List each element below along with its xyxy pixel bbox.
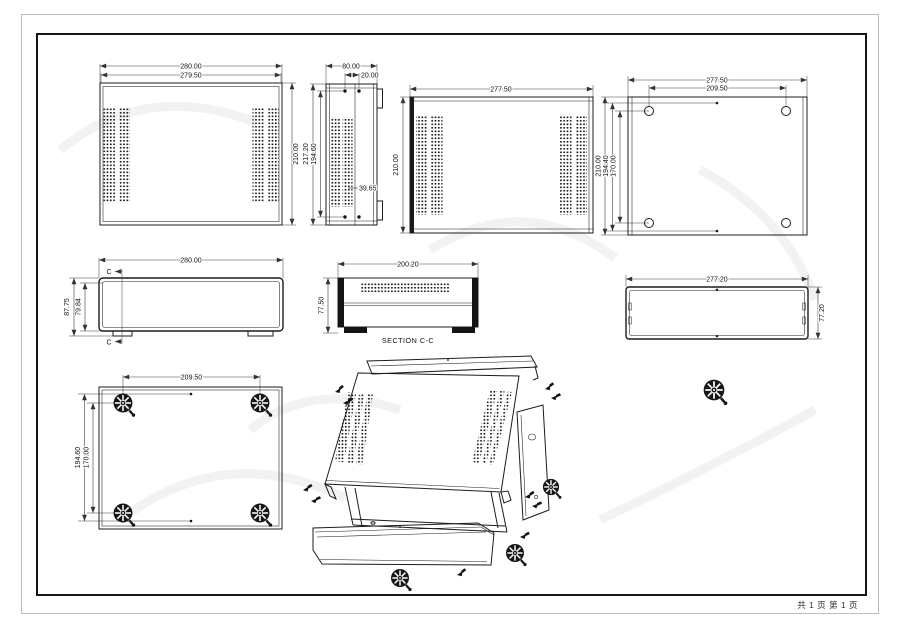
dim-height: 77.20 [819, 304, 826, 322]
dim-width-inner: 279.50 [180, 73, 202, 80]
frame-view: 277.20 77.20 [610, 258, 845, 358]
dim-width-outer: 280.00 [180, 64, 202, 71]
rear-panel-outline [100, 83, 282, 225]
page-count-label: 共 1 页 第 1 页 [733, 599, 858, 611]
dim-slot-span-height: 194.40 [603, 155, 610, 177]
dim-width: 277.50 [706, 78, 728, 85]
dim-foot-span-height: 170.00 [84, 447, 91, 469]
section-mark-bottom: C [106, 340, 111, 347]
dim-height-outer: 217.20 [303, 143, 310, 165]
top-cover-part [325, 373, 519, 503]
section-caption: SECTION C-C [382, 336, 434, 345]
dim-depth-note: 39.65 [359, 186, 377, 193]
side-panel-outline [326, 84, 383, 225]
exploded-assembly-view [295, 345, 610, 605]
section-body-outline [338, 278, 478, 333]
dim-width: 280.00 [180, 258, 202, 265]
rear-panel-part [367, 356, 538, 380]
section-cut-line: C C [106, 269, 122, 347]
dim-height: 77.50 [319, 297, 326, 315]
dim-width: 200.20 [397, 262, 419, 269]
dim-dot-span-height: 194.60 [75, 447, 82, 469]
front-panel-outline [99, 278, 283, 336]
dim-hole-offset: 20.00 [361, 73, 379, 80]
base-plate-view: 277.50 209.50 210.00 194.40 170.00 [588, 52, 838, 252]
side-bracket-part [517, 405, 549, 520]
rear-panel-view: 280.00 279.50 210.00 [60, 52, 310, 237]
dim-width: 80.00 [342, 64, 360, 71]
dim-height: 210.00 [393, 154, 400, 176]
base-plate-outline [628, 97, 807, 235]
dim-width: 277.50 [490, 87, 512, 94]
foot-detail-view [690, 368, 740, 414]
section-mark-top: C [106, 269, 111, 276]
chassis-frame-part [345, 487, 507, 532]
bottom-view: 209.50 194.60 170.00 [60, 368, 305, 548]
dim-hole-span-width: 209.50 [706, 86, 728, 93]
dim-height-outer: 87.75 [64, 298, 71, 316]
dim-height: 210.00 [596, 155, 603, 177]
front-view: 280.00 87.75 79.84 C C [55, 248, 310, 360]
dim-foot-span-width: 209.50 [181, 375, 203, 382]
drawing-sheet: { "footer": { "page_info": "共 1 页 第 1 页"… [0, 0, 900, 636]
inner-panel-view: 277.50 210.00 [388, 60, 603, 242]
dim-hole-span-height: 170.00 [611, 155, 618, 177]
dim-height-inner: 194.60 [311, 143, 318, 165]
dim-width: 277.20 [706, 277, 728, 284]
front-panel-part [313, 523, 494, 565]
dim-height-inner: 79.84 [76, 298, 83, 316]
frame-outline [626, 287, 808, 339]
inner-panel-outline [410, 97, 593, 233]
